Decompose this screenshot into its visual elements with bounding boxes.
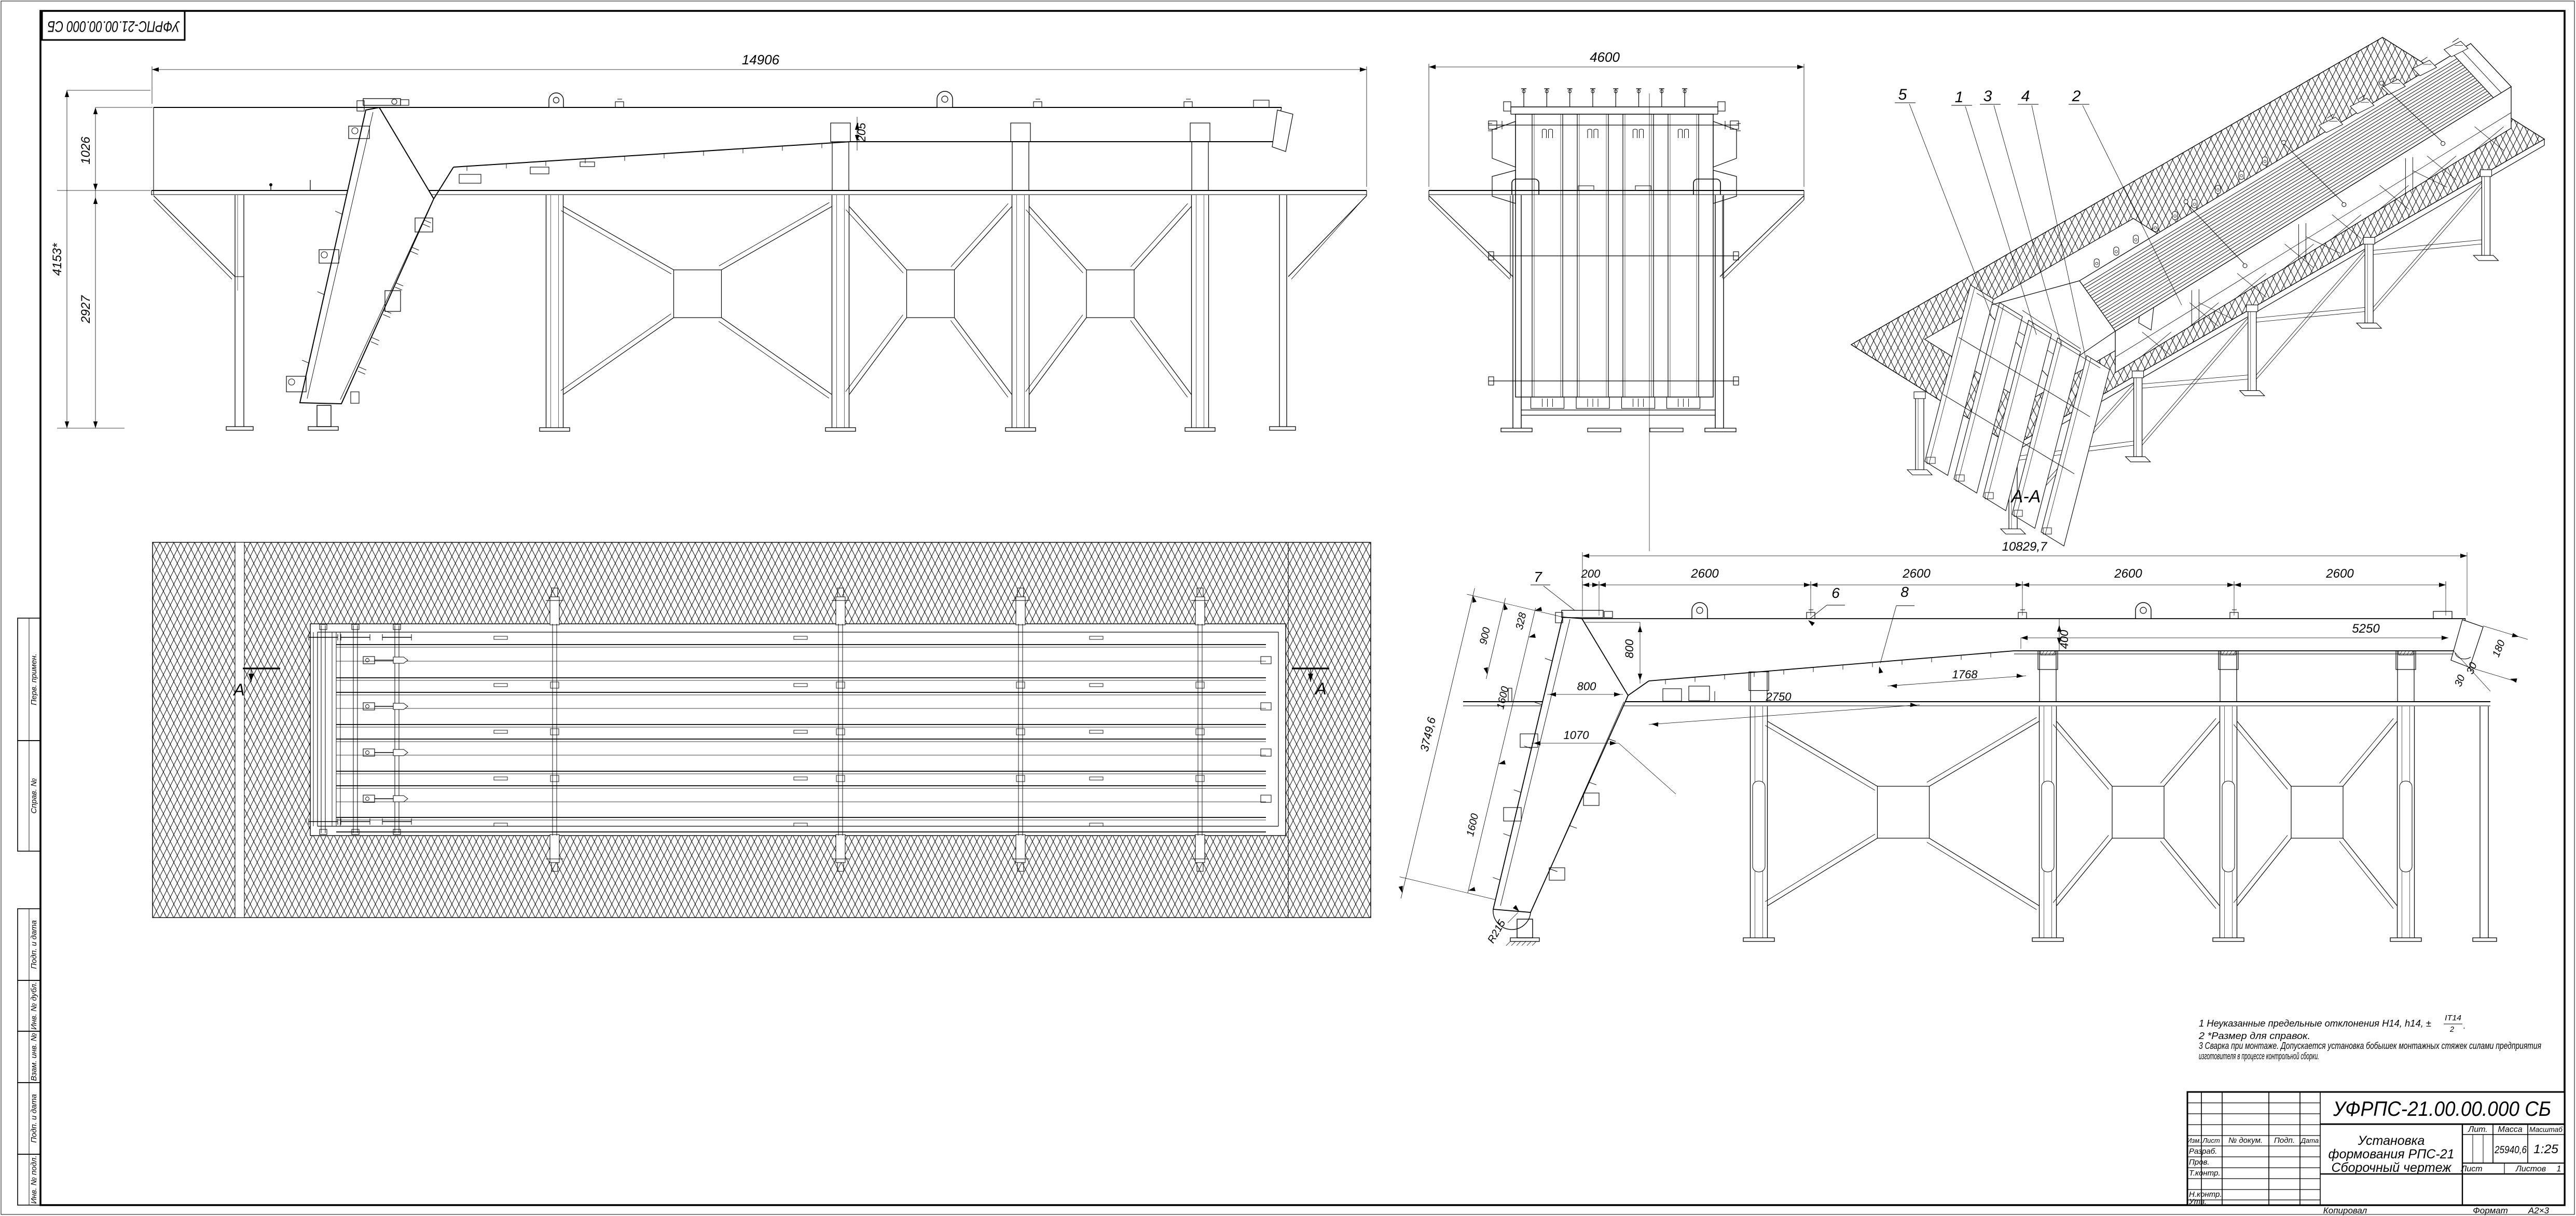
- svg-text:Листов: Листов: [2515, 1165, 2546, 1173]
- svg-text:1:25: 1:25: [2533, 1142, 2559, 1156]
- svg-text:800: 800: [1623, 639, 1636, 658]
- svg-text:Подп.: Подп.: [2274, 1136, 2295, 1145]
- svg-text:5: 5: [1898, 86, 1907, 103]
- svg-text:1 Неуказанные предельные откл: 1 Неуказанные предельные отклонения Н14,…: [2199, 1018, 2431, 1029]
- svg-text:А: А: [1314, 679, 1326, 698]
- svg-text:1070: 1070: [1564, 729, 1590, 742]
- svg-text:Подп. и дата: Подп. и дата: [30, 920, 38, 969]
- svg-text:200: 200: [1581, 567, 1601, 580]
- svg-text:1026: 1026: [79, 136, 93, 165]
- svg-text:205: 205: [855, 122, 868, 142]
- svg-text:2: 2: [2449, 1025, 2455, 1034]
- svg-text:Справ. №: Справ. №: [30, 778, 38, 813]
- svg-text:№ докум.: № докум.: [2228, 1136, 2263, 1145]
- svg-text:25940,6: 25940,6: [2494, 1144, 2527, 1156]
- svg-text:Масштаб: Масштаб: [2529, 1125, 2563, 1133]
- svg-text:Изм.: Изм.: [2187, 1137, 2201, 1144]
- svg-text:УФРПС-21.00.00.000 СБ: УФРПС-21.00.00.000 СБ: [2333, 1098, 2551, 1121]
- svg-text:Инв. № дубл.: Инв. № дубл.: [30, 982, 38, 1030]
- svg-text:Лист: Лист: [2202, 1137, 2220, 1144]
- svg-text:Разраб.: Разраб.: [2189, 1147, 2217, 1156]
- svg-text:Подп. и дата: Подп. и дата: [30, 1094, 38, 1143]
- svg-text:10829,7: 10829,7: [2002, 540, 2048, 554]
- svg-text:800: 800: [1577, 680, 1596, 693]
- svg-text:.: .: [2463, 1020, 2465, 1031]
- svg-text:Т.контр.: Т.контр.: [2189, 1169, 2221, 1178]
- svg-text:Пров.: Пров.: [2189, 1158, 2210, 1167]
- svg-text:2 *Размер для справок.: 2 *Размер для справок.: [2198, 1031, 2310, 1041]
- svg-text:УФРПС-21.00.00.000 СБ: УФРПС-21.00.00.000 СБ: [48, 18, 181, 35]
- svg-text:Взам. инв. №: Взам. инв. №: [30, 1033, 38, 1081]
- svg-text:IT14: IT14: [2445, 1014, 2461, 1022]
- svg-text:Установка: Установка: [2358, 1133, 2425, 1148]
- svg-text:2: 2: [2072, 88, 2081, 105]
- svg-text:2750: 2750: [1766, 690, 1792, 703]
- svg-text:2600: 2600: [2114, 567, 2142, 581]
- svg-text:1768: 1768: [1952, 668, 1978, 681]
- svg-text:6: 6: [1831, 585, 1840, 601]
- svg-text:4153*: 4153*: [50, 243, 64, 276]
- svg-text:Формат: Формат: [2473, 1206, 2508, 1215]
- svg-text:А: А: [232, 680, 244, 699]
- svg-text:4: 4: [2021, 88, 2030, 105]
- svg-text:2600: 2600: [2325, 567, 2354, 581]
- svg-text:14906: 14906: [742, 52, 780, 67]
- svg-text:А2×3: А2×3: [2528, 1206, 2550, 1215]
- svg-text:3: 3: [1983, 88, 1992, 105]
- svg-text:Инв. № подл.: Инв. № подл.: [30, 1155, 38, 1204]
- svg-text:Дата: Дата: [2300, 1137, 2319, 1144]
- svg-text:Лит.: Лит.: [2468, 1125, 2487, 1134]
- svg-text:7: 7: [1534, 569, 1542, 585]
- svg-text:3 Сварка при монтаже. Допуска: 3 Сварка при монтаже. Допускается устано…: [2199, 1041, 2541, 1051]
- svg-text:2600: 2600: [1690, 567, 1719, 581]
- svg-text:Масса: Масса: [2498, 1125, 2522, 1134]
- svg-text:Утв.: Утв.: [2188, 1197, 2207, 1206]
- svg-text:изготовителя в процессе контро: изготовителя в процессе контрольной сбор…: [2199, 1051, 2319, 1061]
- svg-text:1: 1: [2557, 1165, 2561, 1173]
- svg-text:5250: 5250: [2352, 622, 2380, 636]
- svg-text:400: 400: [2058, 630, 2071, 649]
- svg-text:Перв. примен.: Перв. примен.: [30, 653, 38, 705]
- svg-text:формования РПС-21: формования РПС-21: [2328, 1147, 2454, 1162]
- svg-text:Лист: Лист: [2460, 1165, 2482, 1173]
- svg-text:2600: 2600: [1902, 567, 1931, 581]
- svg-text:2927: 2927: [79, 295, 93, 324]
- svg-text:4600: 4600: [1590, 49, 1620, 65]
- svg-text:Копировал: Копировал: [2323, 1206, 2367, 1215]
- svg-text:8: 8: [1900, 584, 1909, 600]
- svg-text:Сборочный чертеж: Сборочный чертеж: [2331, 1160, 2452, 1175]
- svg-text:1: 1: [1955, 89, 1964, 106]
- svg-text:А-А: А-А: [2010, 487, 2041, 507]
